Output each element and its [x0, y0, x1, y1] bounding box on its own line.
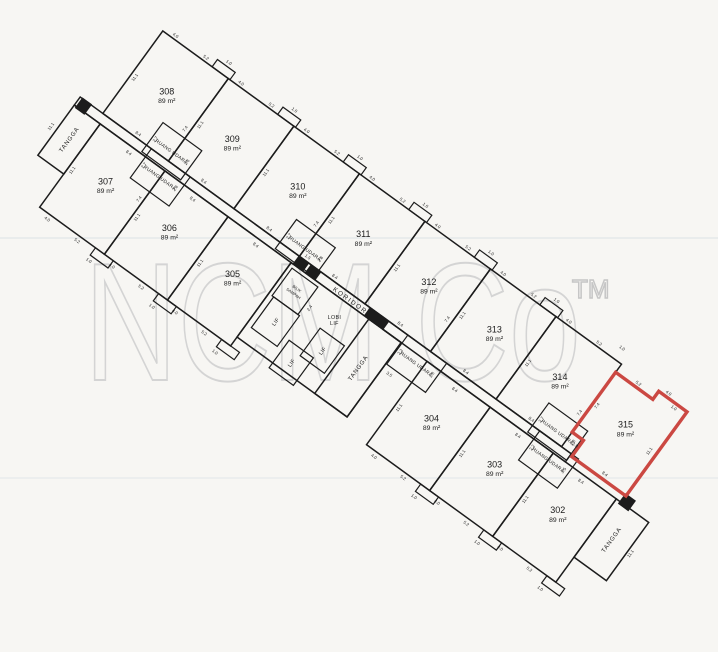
lobby-label-line2: LIF [330, 321, 339, 327]
dim-label: 4.0 [43, 215, 51, 223]
unit-number: 312 [421, 277, 436, 287]
unit-number: 306 [162, 223, 177, 233]
unit-area: 89 m² [289, 193, 307, 200]
dim-label: 1.0 [536, 584, 544, 592]
unit-number: 315 [618, 420, 633, 430]
stair-label: TANGGA [601, 527, 623, 555]
dim-label: 1.0 [618, 344, 626, 352]
trademark-mark: TM [572, 274, 610, 304]
dim-label: 5.2 [73, 237, 81, 245]
unit-area: 89 m² [486, 471, 504, 478]
unit-area: 89 m² [97, 188, 115, 195]
unit-area: 89 m² [551, 384, 569, 391]
unit-number: 308 [159, 86, 174, 96]
dim-label: 5.2 [526, 565, 534, 573]
unit-area: 89 m² [423, 425, 441, 432]
dim-label: 7.4 [312, 220, 320, 228]
dim-label: 4.0 [496, 544, 504, 552]
floor-plan-svg: NCM Co TM RUANG UDARA2.72.8RUANG UDARA2.… [0, 0, 718, 652]
dim-label: 7.4 [181, 124, 189, 132]
unit-number: 309 [225, 134, 240, 144]
unit-number: 310 [290, 182, 305, 192]
dim-label: 11.1 [46, 121, 55, 131]
unit-area: 89 m² [224, 146, 242, 153]
unit-area: 89 m² [420, 288, 438, 295]
dim-label: 8.4 [514, 432, 522, 440]
unit-number: 307 [98, 177, 113, 187]
unit-number: 313 [487, 324, 502, 334]
dim-label: 8.4 [189, 195, 197, 203]
unit-area: 89 m² [486, 336, 504, 343]
unit-number: 311 [356, 229, 370, 239]
dim-label: 8.4 [125, 149, 133, 157]
dim-label: 8.4 [577, 477, 585, 485]
unit-area: 89 m² [161, 235, 179, 242]
dim-label: 4.0 [433, 498, 441, 506]
dim-label: 5.2 [399, 474, 407, 482]
stair-label: TANGGA [59, 126, 81, 154]
unit-area: 89 m² [617, 431, 635, 438]
dim-label: 11.1 [626, 548, 635, 558]
unit-number: 302 [550, 505, 565, 515]
unit-area: 89 m² [355, 241, 373, 248]
unit-number: 303 [487, 459, 502, 469]
dim-label: 1.0 [410, 493, 418, 501]
unit-number: 304 [424, 413, 439, 423]
unit-number: 305 [225, 269, 240, 279]
scanned-floor-plan-page: NCM Co TM RUANG UDARA2.72.8RUANG UDARA2.… [0, 0, 718, 652]
dim-label: 11.1 [645, 446, 654, 456]
dim-label: 1.0 [473, 539, 481, 547]
unit-area: 89 m² [224, 281, 242, 288]
unit-area: 89 m² [549, 517, 567, 524]
facade-notch [542, 576, 565, 596]
dim-label: 5.2 [462, 520, 470, 528]
dim-label: 4.0 [370, 453, 378, 461]
unit-area: 89 m² [158, 98, 176, 105]
unit-number: 314 [552, 372, 567, 382]
